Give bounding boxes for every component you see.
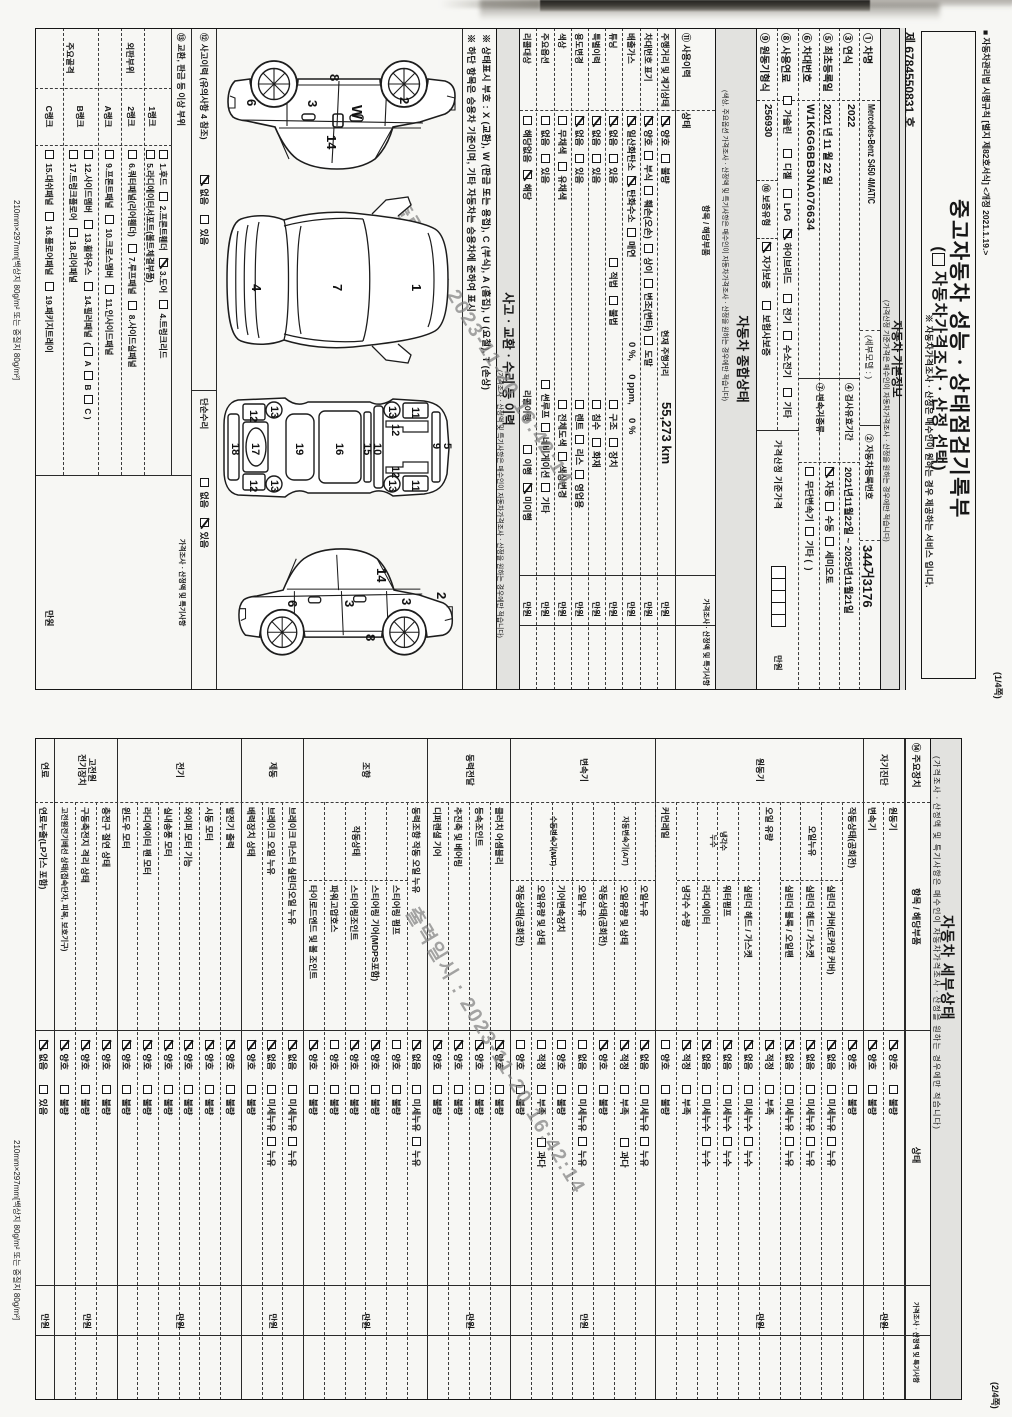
- svg-text:12: 12: [389, 424, 401, 436]
- svg-text:8: 8: [363, 634, 378, 641]
- svg-text:3: 3: [305, 100, 320, 107]
- svg-text:11: 11: [409, 480, 421, 492]
- svg-text:10: 10: [371, 443, 383, 455]
- svg-text:16: 16: [333, 443, 345, 455]
- svg-text:W: W: [348, 105, 365, 120]
- svg-text:17: 17: [249, 443, 261, 455]
- svg-text:5: 5: [441, 443, 453, 449]
- svg-text:14: 14: [324, 135, 339, 150]
- svg-text:3: 3: [342, 600, 357, 607]
- svg-text:12: 12: [247, 480, 259, 492]
- svg-text:7: 7: [330, 284, 345, 291]
- svg-text:3: 3: [399, 598, 414, 605]
- svg-text:6: 6: [285, 600, 300, 607]
- svg-text:12: 12: [247, 410, 259, 422]
- svg-text:1: 1: [409, 284, 424, 291]
- svg-text:12: 12: [389, 466, 401, 478]
- svg-text:2: 2: [434, 592, 449, 599]
- svg-text:11: 11: [409, 407, 421, 419]
- svg-text:13: 13: [268, 406, 280, 418]
- svg-text:13: 13: [386, 480, 398, 492]
- svg-text:4: 4: [249, 284, 264, 292]
- svg-text:6: 6: [244, 99, 259, 106]
- svg-text:8: 8: [327, 74, 342, 81]
- svg-text:2: 2: [397, 97, 412, 104]
- svg-text:19: 19: [293, 443, 305, 455]
- svg-text:9: 9: [430, 443, 442, 449]
- svg-text:14: 14: [374, 568, 389, 583]
- svg-text:18: 18: [229, 443, 241, 455]
- svg-text:13: 13: [268, 480, 280, 492]
- svg-text:13: 13: [386, 406, 398, 418]
